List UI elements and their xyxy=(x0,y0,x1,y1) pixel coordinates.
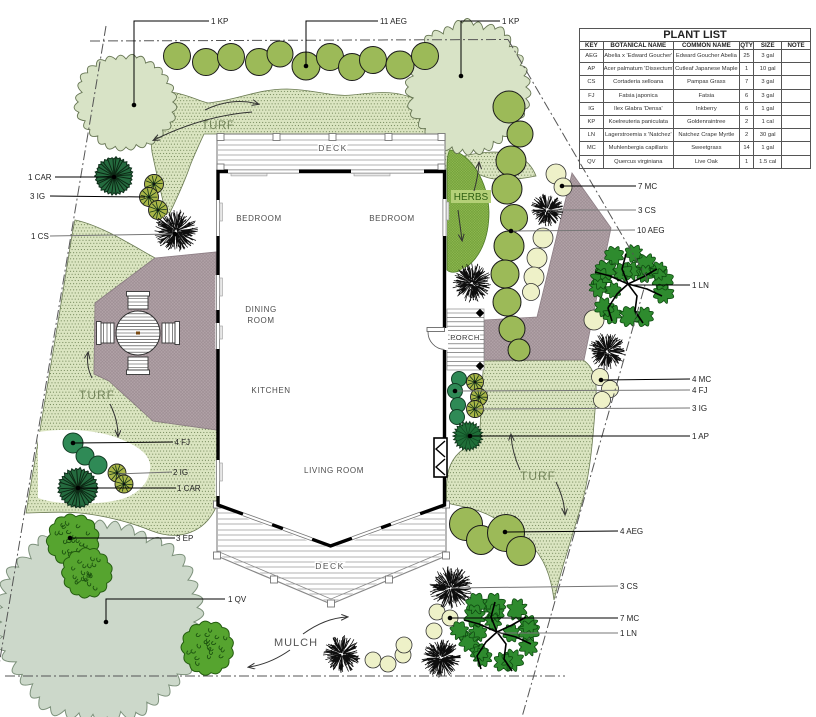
svg-text:HERBS: HERBS xyxy=(454,192,489,203)
svg-text:MULCH: MULCH xyxy=(274,637,318,649)
svg-text:TURF: TURF xyxy=(520,469,556,483)
svg-text:3 CS: 3 CS xyxy=(620,582,638,591)
svg-text:4 AEG: 4 AEG xyxy=(620,527,643,536)
svg-text:7 MC: 7 MC xyxy=(638,182,657,191)
svg-text:1 CS: 1 CS xyxy=(31,232,49,241)
svg-text:1 CAR: 1 CAR xyxy=(28,173,52,182)
svg-text:LIVING ROOM: LIVING ROOM xyxy=(304,466,364,475)
svg-text:1 KP: 1 KP xyxy=(502,17,519,26)
svg-text:TURF: TURF xyxy=(201,120,234,132)
svg-text:1 CAR: 1 CAR xyxy=(177,484,201,493)
svg-text:BEDROOM: BEDROOM xyxy=(236,214,282,223)
svg-text:4 FJ: 4 FJ xyxy=(175,438,191,447)
svg-text:ROOM: ROOM xyxy=(247,316,274,325)
svg-text:DECK: DECK xyxy=(315,561,345,571)
svg-text:10 AEG: 10 AEG xyxy=(637,226,665,235)
svg-text:2 IG: 2 IG xyxy=(173,468,188,477)
svg-text:DINING: DINING xyxy=(245,305,277,314)
svg-text:4 MC: 4 MC xyxy=(692,375,711,384)
svg-text:3 IG: 3 IG xyxy=(692,404,707,413)
svg-text:DECK: DECK xyxy=(318,143,348,153)
svg-text:3 IG: 3 IG xyxy=(30,192,45,201)
svg-text:BEDROOM: BEDROOM xyxy=(369,214,415,223)
svg-text:7 MC: 7 MC xyxy=(620,614,639,623)
svg-text:TURF: TURF xyxy=(79,388,115,402)
svg-text:1 KP: 1 KP xyxy=(211,17,228,26)
svg-text:11 AEG: 11 AEG xyxy=(380,17,407,26)
svg-text:1 AP: 1 AP xyxy=(692,432,709,441)
svg-text:KITCHEN: KITCHEN xyxy=(251,386,290,395)
svg-text:3 EP: 3 EP xyxy=(176,534,193,543)
svg-text:1 QV: 1 QV xyxy=(228,595,247,604)
svg-text:1 LN: 1 LN xyxy=(620,629,637,638)
svg-text:1 LN: 1 LN xyxy=(692,281,709,290)
svg-text:4 FJ: 4 FJ xyxy=(692,386,708,395)
svg-text:3 CS: 3 CS xyxy=(638,206,656,215)
svg-text:PORCH: PORCH xyxy=(450,333,480,342)
